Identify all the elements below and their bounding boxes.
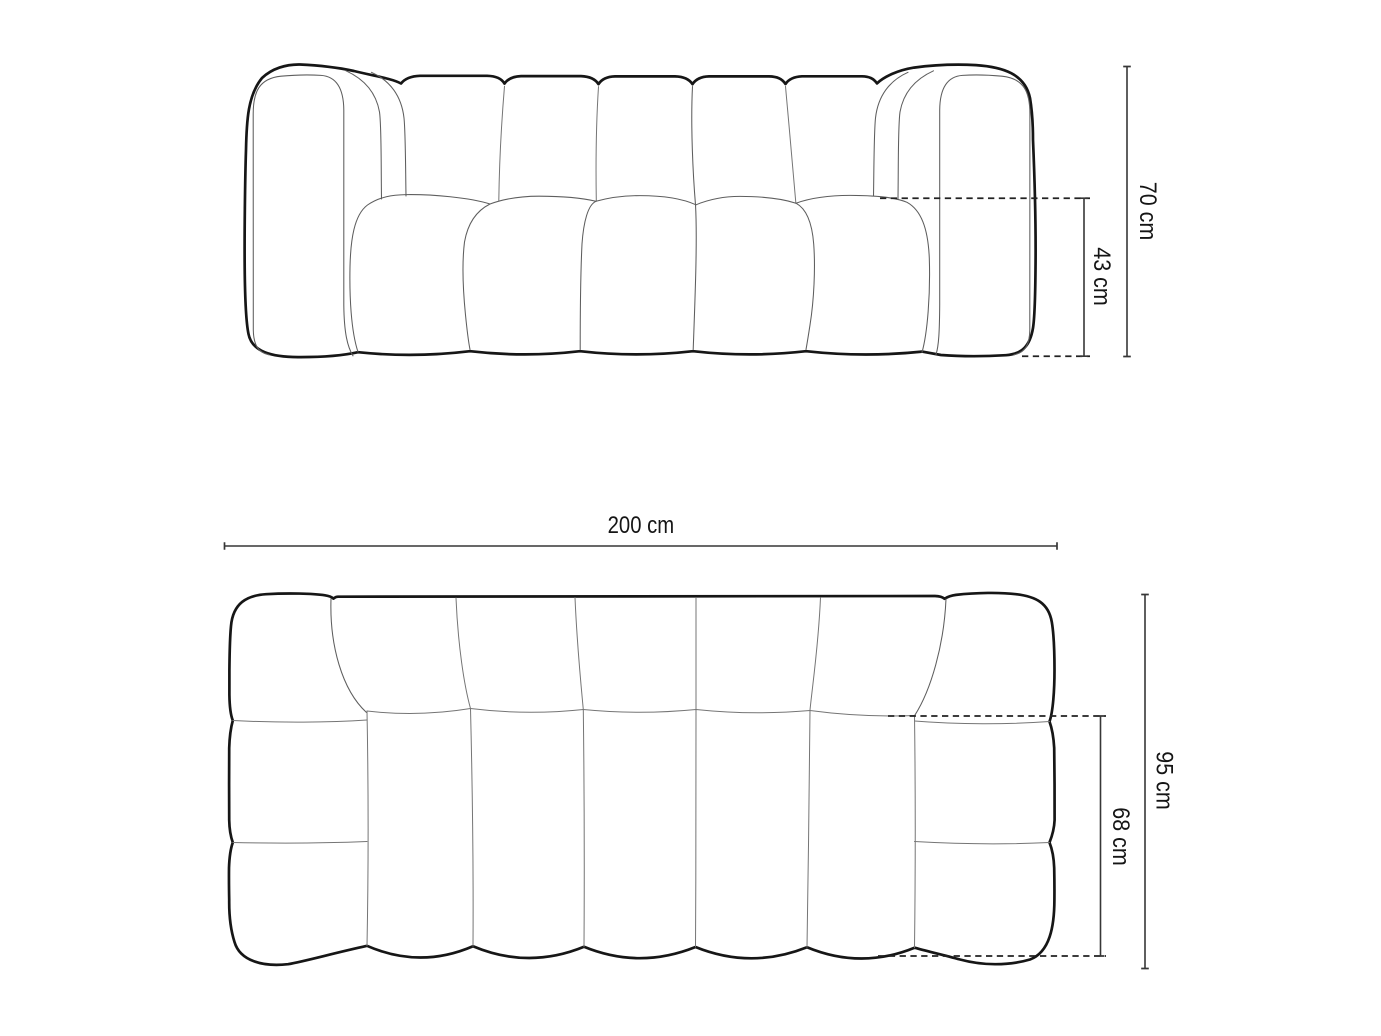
svg-text:95 cm: 95 cm — [1151, 751, 1178, 810]
svg-text:43 cm: 43 cm — [1088, 247, 1115, 306]
svg-text:200 cm: 200 cm — [608, 512, 675, 539]
svg-text:70 cm: 70 cm — [1134, 182, 1161, 241]
svg-text:68 cm: 68 cm — [1107, 807, 1134, 866]
